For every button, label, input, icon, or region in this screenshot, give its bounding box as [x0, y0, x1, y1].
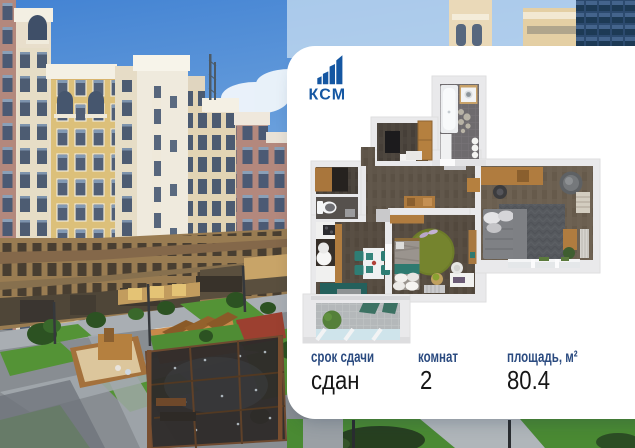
svg-text:КСМ: КСМ	[309, 87, 347, 104]
